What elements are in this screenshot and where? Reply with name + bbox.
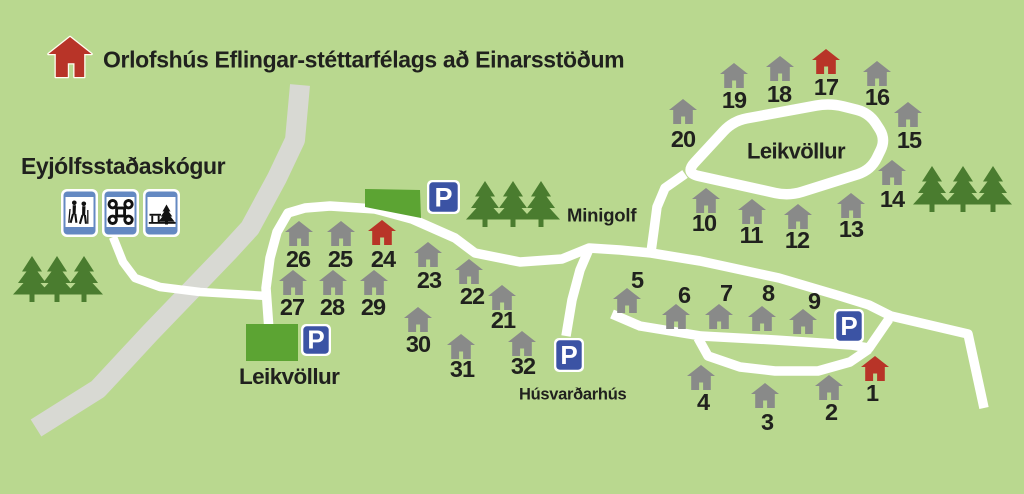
svg-text:4: 4: [697, 389, 710, 415]
svg-text:21: 21: [491, 307, 516, 333]
svg-text:22: 22: [460, 283, 485, 309]
svg-text:27: 27: [280, 294, 305, 320]
svg-text:19: 19: [722, 87, 747, 113]
svg-text:Minigolf: Minigolf: [567, 205, 637, 226]
svg-text:25: 25: [328, 246, 353, 272]
svg-text:28: 28: [320, 294, 345, 320]
svg-text:P: P: [560, 340, 577, 370]
svg-text:5: 5: [631, 267, 644, 293]
svg-text:12: 12: [785, 227, 810, 253]
svg-text:7: 7: [720, 280, 733, 306]
svg-text:1: 1: [866, 380, 879, 406]
svg-text:P: P: [840, 311, 857, 341]
svg-text:29: 29: [361, 294, 386, 320]
svg-text:6: 6: [678, 282, 691, 308]
svg-text:32: 32: [511, 353, 536, 379]
svg-text:17: 17: [814, 74, 839, 100]
svg-text:8: 8: [762, 280, 775, 306]
svg-text:31: 31: [450, 356, 475, 382]
svg-text:13: 13: [839, 216, 864, 242]
svg-text:10: 10: [692, 210, 717, 236]
svg-text:26: 26: [286, 246, 311, 272]
svg-text:2: 2: [825, 399, 838, 425]
svg-text:9: 9: [808, 288, 821, 314]
svg-text:20: 20: [671, 126, 696, 152]
svg-text:15: 15: [897, 127, 922, 153]
svg-text:30: 30: [406, 331, 431, 357]
svg-text:16: 16: [865, 84, 890, 110]
svg-text:23: 23: [417, 267, 442, 293]
svg-text:24: 24: [371, 246, 396, 272]
svg-text:3: 3: [761, 409, 774, 435]
svg-text:P: P: [307, 325, 324, 355]
svg-text:Leikvöllur: Leikvöllur: [747, 139, 846, 164]
svg-text:Húsvarðarhús: Húsvarðarhús: [519, 386, 626, 404]
svg-text:P: P: [434, 182, 452, 212]
svg-text:Eyjólfsstaðaskógur: Eyjólfsstaðaskógur: [21, 153, 226, 179]
svg-text:Orlofshús Eflingar-stéttarféla: Orlofshús Eflingar-stéttarfélags að Eina…: [103, 47, 624, 73]
svg-text:18: 18: [767, 81, 792, 107]
svg-text:11: 11: [740, 222, 764, 248]
svg-text:Leikvöllur: Leikvöllur: [239, 364, 340, 389]
svg-text:14: 14: [880, 186, 905, 212]
